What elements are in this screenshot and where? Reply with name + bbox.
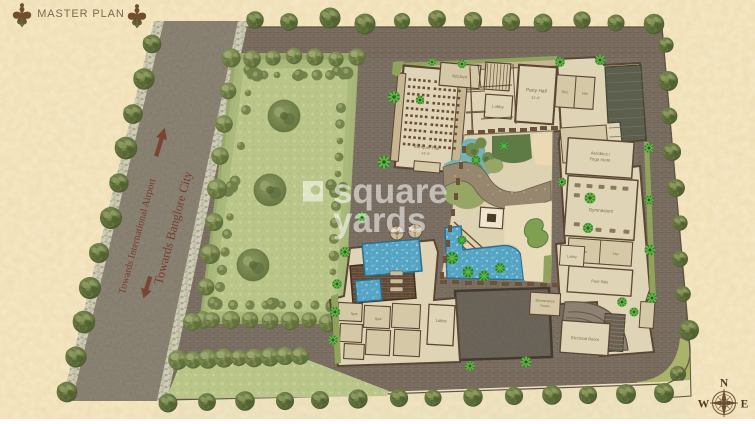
svg-text:41'-0": 41'-0" (421, 151, 431, 156)
svg-text:MASTER PLAN: MASTER PLAN (37, 8, 125, 20)
svg-text:Him: Him (561, 90, 568, 94)
svg-text:yards: yards (333, 201, 426, 240)
svg-text:Her: Her (582, 92, 589, 96)
svg-text:31'-0": 31'-0" (531, 96, 541, 101)
svg-text:Lobby: Lobby (492, 104, 505, 110)
svg-text:E: E (741, 399, 749, 411)
svg-text:Room: Room (540, 304, 549, 308)
svg-text:Lobby: Lobby (567, 254, 577, 259)
svg-text:Spa: Spa (351, 312, 359, 316)
svg-text:N: N (720, 378, 729, 390)
svg-text:Her: Her (613, 252, 620, 256)
svg-text:W: W (698, 399, 710, 411)
svg-text:Spa: Spa (375, 317, 383, 321)
svg-text:Lobby: Lobby (436, 318, 447, 324)
